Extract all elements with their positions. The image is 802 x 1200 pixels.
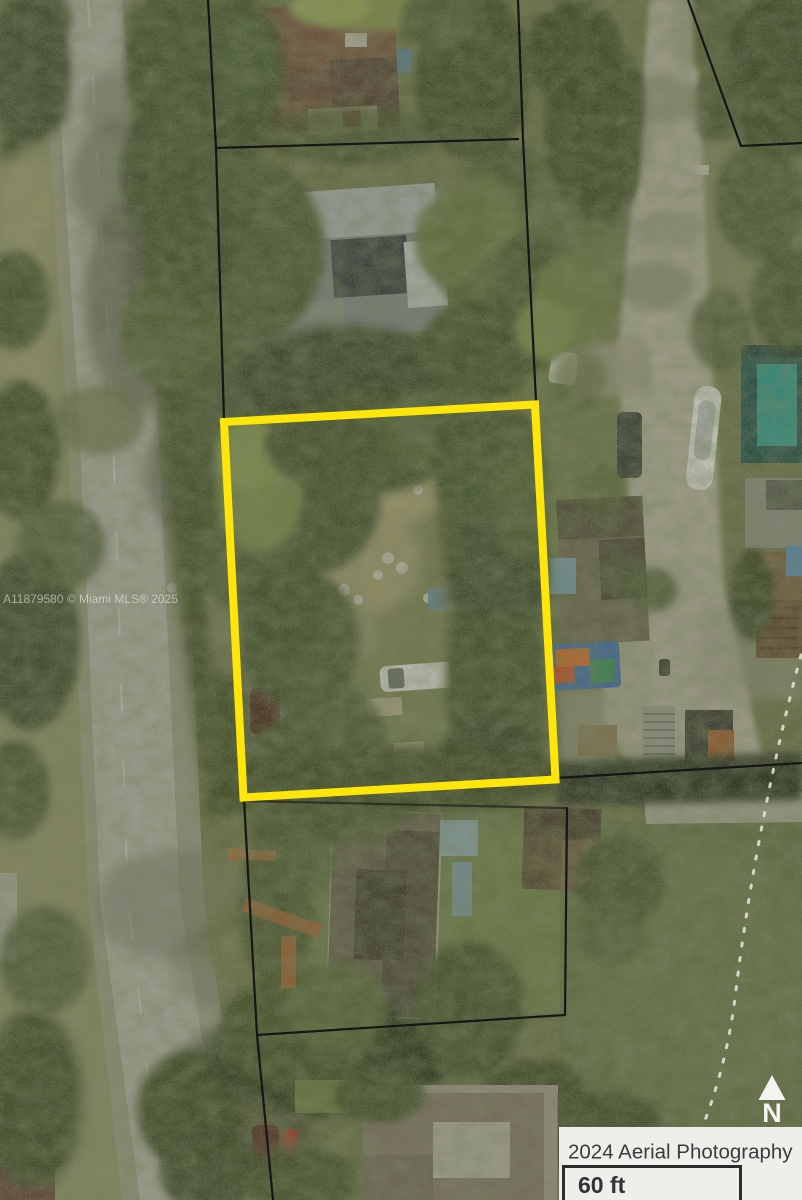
svg-text:60 ft: 60 ft [578, 1172, 626, 1198]
svg-text:A11879580 © Miami MLS® 2025: A11879580 © Miami MLS® 2025 [3, 592, 178, 606]
svg-text:N: N [762, 1098, 782, 1128]
svg-text:2024 Aerial Photography: 2024 Aerial Photography [568, 1141, 793, 1164]
